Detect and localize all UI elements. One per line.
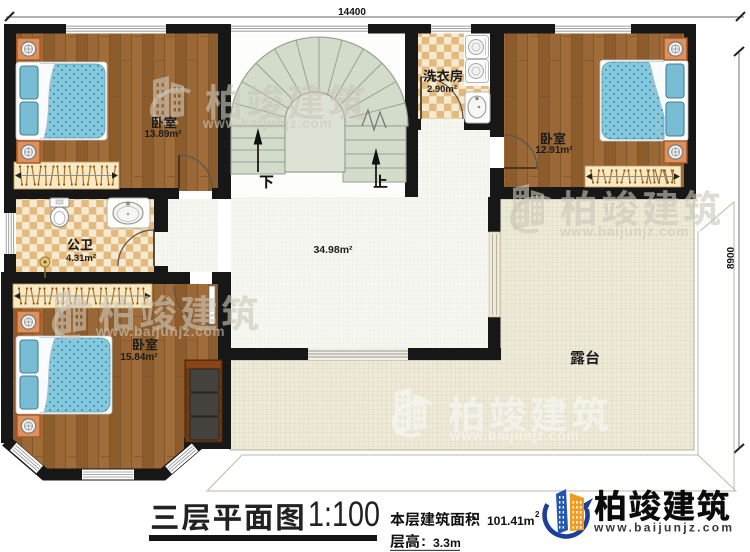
svg-text:www.baijunjz.com: www.baijunjz.com [202,116,332,131]
svg-text:4.31m²: 4.31m² [66,253,96,264]
svg-text:1:100: 1:100 [308,495,380,534]
svg-text:2: 2 [535,510,540,519]
svg-text:12.91m²: 12.91m² [535,145,573,156]
svg-text:www.baijunjz.com: www.baijunjz.com [593,521,734,535]
svg-text:15.84m²: 15.84m² [120,352,158,363]
svg-text:www.baijunjz.com: www.baijunjz.com [95,324,225,339]
svg-text:3.3m: 3.3m [433,536,461,550]
svg-text::: : [472,511,477,528]
svg-text:2.90m²: 2.90m² [427,84,457,95]
svg-text:34.98m²: 34.98m² [313,244,353,256]
svg-text:8900: 8900 [726,246,737,269]
svg-text:www.baijunjz.com: www.baijunjz.com [559,224,689,239]
svg-text:13.89m²: 13.89m² [144,129,182,140]
svg-text:101.41m: 101.41m [487,514,535,528]
svg-text:www.baijunjz.com: www.baijunjz.com [449,428,579,443]
svg-text::: : [421,533,426,550]
svg-text:14400: 14400 [338,7,366,18]
